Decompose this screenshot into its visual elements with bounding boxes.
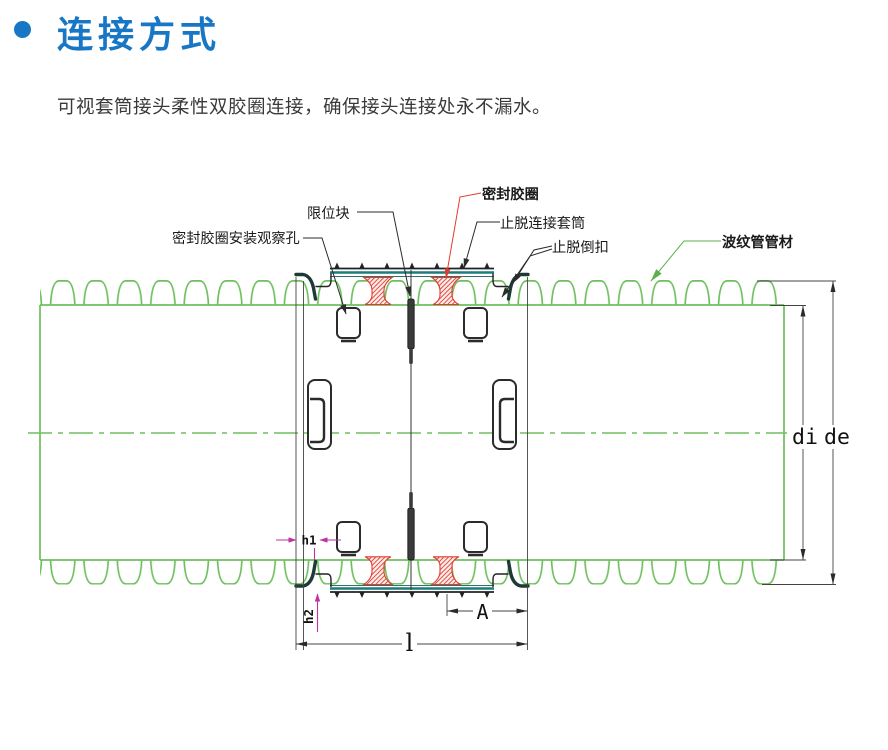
dim-h2: h2 [301,609,316,624]
dim-de: de [824,425,850,450]
dim-di: di [792,425,818,450]
leader-anti-pullout-sleeve [464,222,500,268]
leader-seal-ring [446,193,481,278]
pipe-connection-diagram: 密封胶圈安装观察孔 限位块 密封胶圈 止脱连接套筒 止脱倒扣 波纹管管材 di … [0,0,888,750]
label-anti-pullout-sleeve: 止脱连接套筒 [500,215,585,232]
limit-block [408,270,414,590]
label-limit-block: 限位块 [307,206,350,222]
label-seal-ring: 密封胶圈 [481,186,539,203]
dim-A: A [476,600,488,624]
callout-labels: 密封胶圈安装观察孔 限位块 密封胶圈 止脱连接套筒 止脱倒扣 波纹管管材 [172,186,793,256]
dim-h1: h1 [301,533,316,548]
leader-corrugated-pipe [651,241,721,281]
label-observation-hole: 密封胶圈安装观察孔 [172,230,300,247]
label-anti-pullout-buckle: 止脱倒扣 [552,239,609,256]
dim-l: l [406,629,414,657]
label-corrugated-pipe: 波纹管管材 [722,234,793,251]
sleeve-latches [308,380,516,449]
dimension-labels: di de A l h1 h2 [301,425,850,657]
connection-section: 连接方式 可视套筒接头柔性双胶圈连接，确保接头连接处永不漏水。 [0,0,888,750]
dimension-lines [296,277,836,650]
